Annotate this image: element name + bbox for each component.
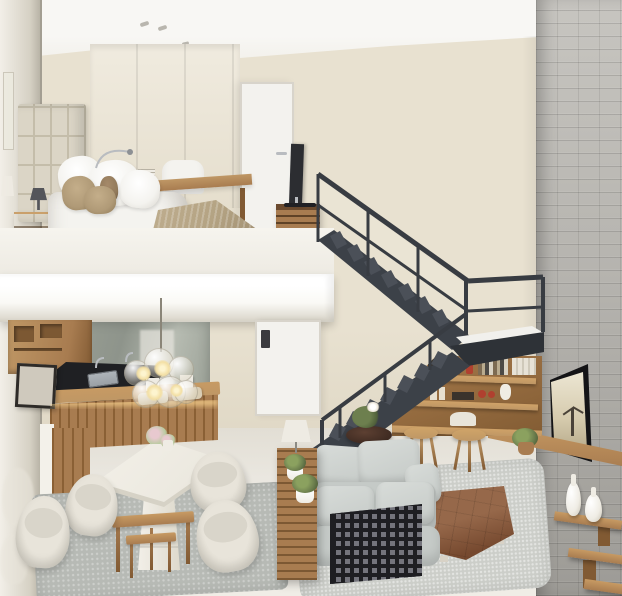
shelf-object-books: [478, 358, 508, 375]
sofa: [306, 438, 442, 580]
bubble-pendant-light: [124, 348, 200, 418]
wood-stool: [452, 429, 486, 441]
shelf-object-vase: [500, 384, 511, 400]
warm-bulb: [146, 384, 163, 401]
plant-pot: [518, 442, 534, 455]
nesting-table-leg: [186, 518, 190, 564]
shelf-object-red-apple: [478, 390, 486, 398]
console-plant: [284, 454, 306, 471]
console-lamp: [281, 420, 311, 442]
pendant-wire: [160, 298, 162, 352]
door-handle: [276, 152, 287, 155]
shelf-object-sculpture: [450, 412, 476, 426]
cabinet-cubby: [40, 324, 62, 338]
mezzanine-floor: [0, 228, 334, 278]
shelf-board: [398, 400, 538, 411]
shelf-object-white-books: [512, 358, 536, 375]
nesting-table-leg: [116, 522, 120, 572]
nesting-table-leg: [130, 542, 133, 578]
shelf-object-candle: [439, 387, 445, 400]
console-plant: [292, 474, 318, 493]
shelf-object-tray: [452, 392, 474, 400]
mirror-lamp-reflection: [1, 176, 14, 196]
mirror-art-reflection: [3, 72, 14, 150]
console-lamp-stem: [295, 442, 297, 453]
cabinet-cubby: [14, 326, 34, 342]
white-vase-round: [585, 494, 602, 522]
door-lock-unit: [261, 330, 270, 348]
white-vase-tall: [566, 482, 581, 516]
warm-bulb: [136, 366, 151, 381]
warm-bulb: [170, 384, 183, 397]
loft-interior-scene: [0, 0, 622, 596]
shelf-object-box: [440, 365, 460, 375]
shelf-board: [410, 374, 536, 384]
tv-stand: [284, 203, 316, 207]
pillow-tan: [83, 185, 116, 215]
stool-leg: [468, 440, 471, 472]
warm-bulb: [154, 360, 171, 377]
flower-pot: [150, 444, 162, 457]
ground-floor-door: [255, 320, 321, 416]
vase-neck: [591, 487, 596, 497]
framed-art: [15, 363, 57, 409]
cabinet-shelf-line: [14, 348, 62, 351]
shelf-object-candle: [430, 382, 437, 400]
shelf-object-red-bottle: [466, 362, 473, 374]
vase-neck: [571, 474, 576, 486]
lattice-side-panel: [330, 504, 426, 588]
nesting-table-leg: [168, 538, 171, 572]
mezzanine-fascia: [0, 274, 334, 322]
flower-pot: [163, 440, 173, 451]
tv-tree-figure: [571, 408, 574, 436]
orchid-flowers: [366, 402, 380, 412]
shelf-object-red-apple: [488, 391, 495, 398]
